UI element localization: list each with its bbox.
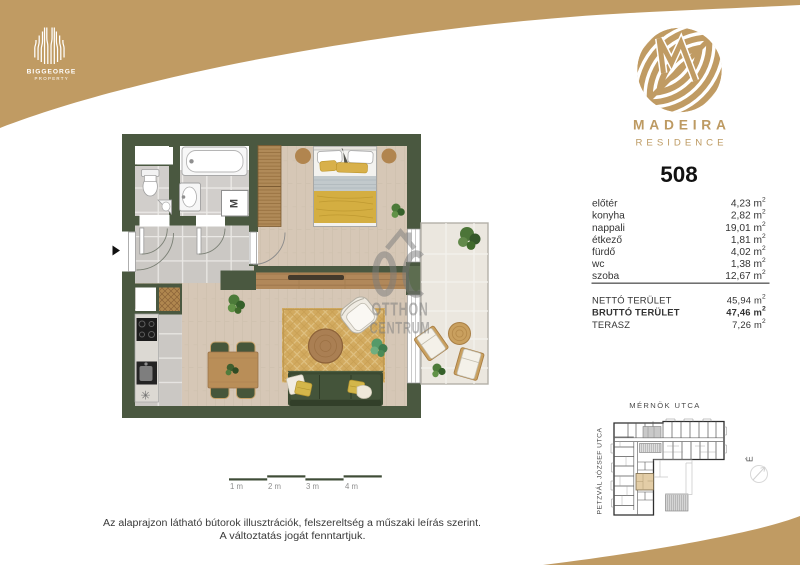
svg-text:MÉRNÖK UTCA: MÉRNÖK UTCA	[629, 401, 701, 410]
svg-text:45,94 m: 45,94 m	[727, 295, 762, 306]
svg-text:OTTHON: OTTHON	[371, 300, 428, 320]
svg-text:M: M	[228, 199, 240, 208]
svg-text:RESIDENCE: RESIDENCE	[636, 137, 724, 148]
svg-text:konyha: konyha	[592, 211, 625, 222]
svg-text:előtér: előtér	[592, 199, 618, 210]
svg-text:✳: ✳	[140, 389, 150, 403]
svg-text:TERASZ: TERASZ	[592, 319, 630, 330]
svg-text:1 m: 1 m	[230, 482, 243, 491]
svg-text:2: 2	[762, 209, 766, 216]
svg-text:Az alaprajzon látható bútorok: Az alaprajzon látható bútorok illusztrác…	[103, 518, 481, 529]
svg-text:2: 2	[762, 233, 766, 240]
svg-text:7,26 m: 7,26 m	[732, 319, 762, 330]
svg-text:PETZVÁL JÓZSEF UTCA: PETZVÁL JÓZSEF UTCA	[595, 428, 604, 515]
svg-text:NETTÓ TERÜLET: NETTÓ TERÜLET	[592, 295, 672, 306]
svg-text:nappali: nappali	[592, 223, 625, 234]
svg-text:2: 2	[762, 294, 766, 301]
svg-text:CENTRUM: CENTRUM	[370, 318, 431, 337]
svg-text:47,46 m: 47,46 m	[726, 307, 762, 318]
svg-text:wc: wc	[591, 259, 604, 270]
svg-text:3 m: 3 m	[306, 482, 319, 491]
svg-text:12,67 m: 12,67 m	[725, 271, 762, 282]
svg-text:2: 2	[762, 245, 766, 252]
svg-text:4,23 m: 4,23 m	[731, 199, 762, 210]
svg-text:É: É	[745, 456, 755, 462]
svg-text:19,01 m: 19,01 m	[725, 223, 762, 234]
svg-text:szoba: szoba	[592, 271, 620, 282]
svg-text:4 m: 4 m	[345, 482, 358, 491]
svg-text:BIGGEORGE: BIGGEORGE	[27, 69, 77, 76]
svg-text:2: 2	[762, 318, 766, 325]
svg-text:2: 2	[762, 221, 766, 228]
svg-text:2 m: 2 m	[268, 482, 281, 491]
svg-text:2: 2	[762, 306, 766, 313]
svg-text:2,82 m: 2,82 m	[731, 211, 762, 222]
svg-text:508: 508	[660, 162, 698, 187]
svg-text:PROPERTY: PROPERTY	[35, 76, 69, 81]
svg-text:étkező: étkező	[592, 235, 622, 246]
svg-text:MADEIRA: MADEIRA	[633, 118, 726, 133]
svg-text:2: 2	[762, 269, 766, 276]
svg-text:1,38 m: 1,38 m	[731, 259, 762, 270]
svg-text:A változtatás jogát fenntartju: A változtatás jogát fenntartjuk.	[220, 531, 366, 542]
svg-text:4,02 m: 4,02 m	[731, 247, 762, 258]
svg-text:BRUTTÓ TERÜLET: BRUTTÓ TERÜLET	[592, 307, 680, 318]
svg-text:fürdő: fürdő	[592, 247, 616, 258]
svg-text:2: 2	[762, 197, 766, 204]
svg-text:1,81 m: 1,81 m	[731, 235, 762, 246]
svg-text:2: 2	[762, 257, 766, 264]
